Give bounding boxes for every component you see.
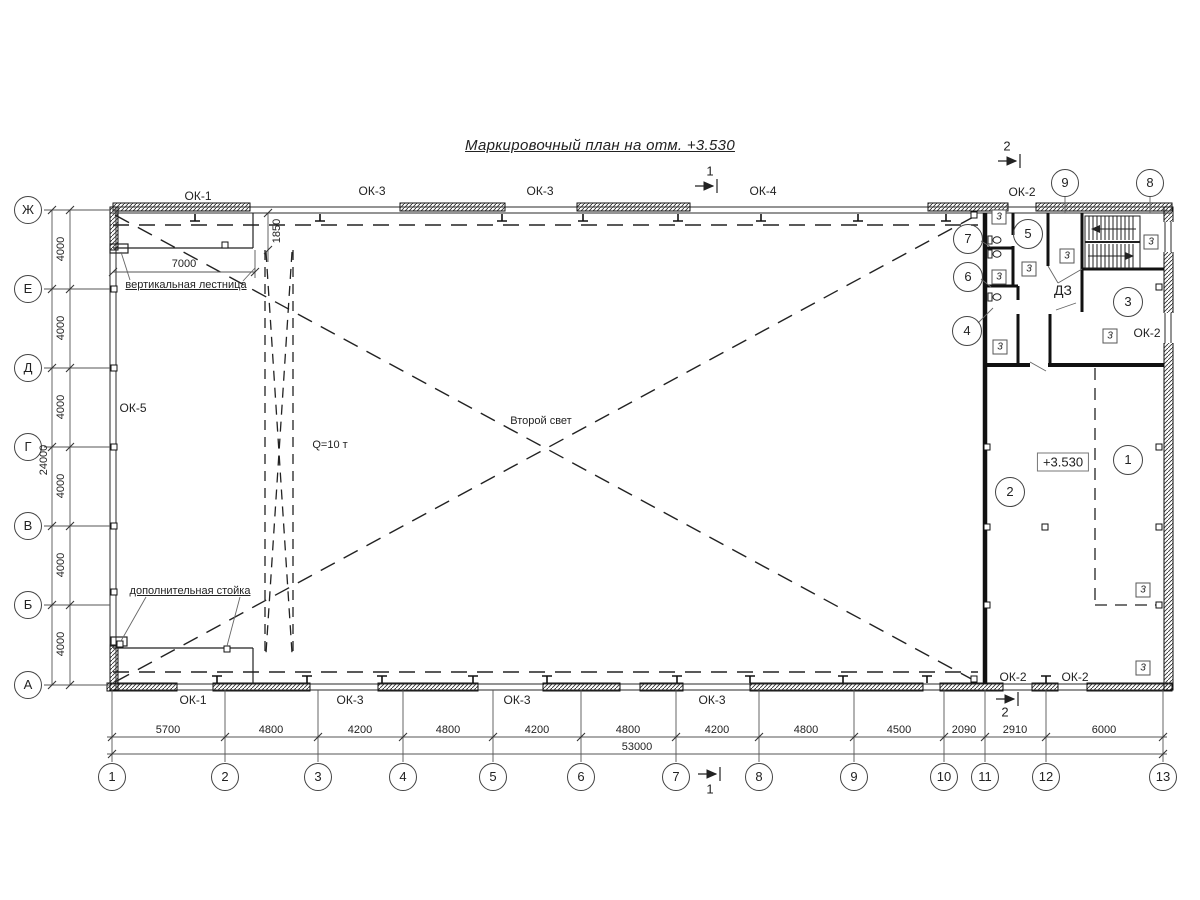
door-mark: 3 [1060, 249, 1075, 264]
level-mark: +3.530 [1037, 453, 1089, 472]
dimension-total: 53000 [622, 741, 653, 753]
grid-number: 11 [971, 763, 999, 791]
window-mark-label: ОК-3 [359, 184, 386, 198]
room-number: 2 [995, 477, 1025, 507]
section-1-top: 1 [706, 164, 713, 179]
grid-letter: А [14, 671, 42, 699]
window-mark-label: ОК-1 [180, 693, 207, 707]
grid-number: 4 [389, 763, 417, 791]
room-number: 1 [1113, 445, 1143, 475]
grid-number-top: 9 [1051, 169, 1079, 197]
grid-number: 6 [567, 763, 595, 791]
grid-letter: Д [14, 354, 42, 382]
dimension: 4500 [887, 724, 911, 736]
grid-letter: В [14, 512, 42, 540]
section-2-top: 2 [1003, 139, 1010, 154]
door-mark: 3 [992, 270, 1007, 285]
dimension: 4200 [348, 724, 372, 736]
grid-number: 10 [930, 763, 958, 791]
window-mark-label: ОК-2 [1134, 326, 1161, 340]
dimension: 4800 [794, 724, 818, 736]
crane-capacity: Q=10 т [312, 439, 347, 451]
window-mark-label: ОК-1 [185, 189, 212, 203]
dimension: 2910 [1003, 724, 1027, 736]
grid-number: 7 [662, 763, 690, 791]
room1-dashed-boundary [1095, 368, 1162, 605]
window-mark-label: ОК-5 [120, 401, 147, 415]
dimension: 2090 [952, 724, 976, 736]
grid-number: 12 [1032, 763, 1060, 791]
dimension: 4000 [55, 395, 67, 419]
dimension: 6000 [1092, 724, 1116, 736]
room-number: 3 [1113, 287, 1143, 317]
window-mark-label: ОК-2 [1000, 670, 1027, 684]
room-number: 4 [952, 316, 982, 346]
bottom-columns [212, 676, 1051, 683]
window-mark-label: ОК-3 [337, 693, 364, 707]
window-mark-label: ОК-3 [504, 693, 531, 707]
window-mark-label: ОК-4 [750, 184, 777, 198]
grid-letter: Ж [14, 196, 42, 224]
dimension: 4200 [705, 724, 729, 736]
section-1-bottom: 1 [706, 782, 713, 797]
shaft-label: ДЗ [1054, 282, 1072, 298]
grid-number: 2 [211, 763, 239, 791]
door-mark: 3 [992, 210, 1007, 225]
door-mark: 3 [1103, 329, 1118, 344]
window-mark-label: ОК-2 [1062, 670, 1089, 684]
floor-plan: Маркировочный план на отм. +3.530 [0, 0, 1200, 900]
dimension: 4200 [525, 724, 549, 736]
window-mark-label: ОК-3 [527, 184, 554, 198]
top-columns [190, 214, 951, 221]
crane-lines [265, 250, 293, 655]
dimension: 5700 [156, 724, 180, 736]
grid-number: 8 [745, 763, 773, 791]
door-mark: 3 [993, 340, 1008, 355]
room-number: 7 [953, 224, 983, 254]
door-mark: 3 [1022, 262, 1037, 277]
dimension: 4000 [55, 553, 67, 577]
door-mark: 3 [1136, 583, 1151, 598]
stairs [1085, 216, 1140, 268]
grid-number: 5 [479, 763, 507, 791]
floor-plan-linework [0, 0, 1200, 900]
dimension: 4000 [55, 632, 67, 656]
dimension: 4000 [55, 316, 67, 340]
dimension-total: 24000 [38, 445, 50, 476]
leaders [121, 196, 1150, 646]
dimension: 4800 [436, 724, 460, 736]
grid-letter: Е [14, 275, 42, 303]
grid-letter: Б [14, 591, 42, 619]
window-mark-label: ОК-2 [1009, 185, 1036, 199]
note-vertical-ladder: вертикальная лестница [125, 279, 246, 291]
grid-number: 1 [98, 763, 126, 791]
grid-number: 9 [840, 763, 868, 791]
section-2-bottom: 2 [1001, 705, 1008, 720]
wc-fixtures [988, 236, 1001, 301]
grid-number-top: 8 [1136, 169, 1164, 197]
window-mark-label: ОК-3 [699, 693, 726, 707]
room-number: 6 [953, 262, 983, 292]
dimension: 4800 [259, 724, 283, 736]
note-additional-post: дополнительная стойка [130, 585, 251, 597]
dimension: 4000 [55, 237, 67, 261]
note-double-height: Второй свет [510, 415, 571, 427]
dimension: 4000 [55, 474, 67, 498]
dimension: 7000 [172, 258, 196, 270]
dimension: 1850 [271, 219, 283, 243]
grid-number: 13 [1149, 763, 1177, 791]
grid-number: 3 [304, 763, 332, 791]
door-mark: 3 [1136, 661, 1151, 676]
dimension: 4800 [616, 724, 640, 736]
room-number: 5 [1013, 219, 1043, 249]
door-mark: 3 [1144, 235, 1159, 250]
